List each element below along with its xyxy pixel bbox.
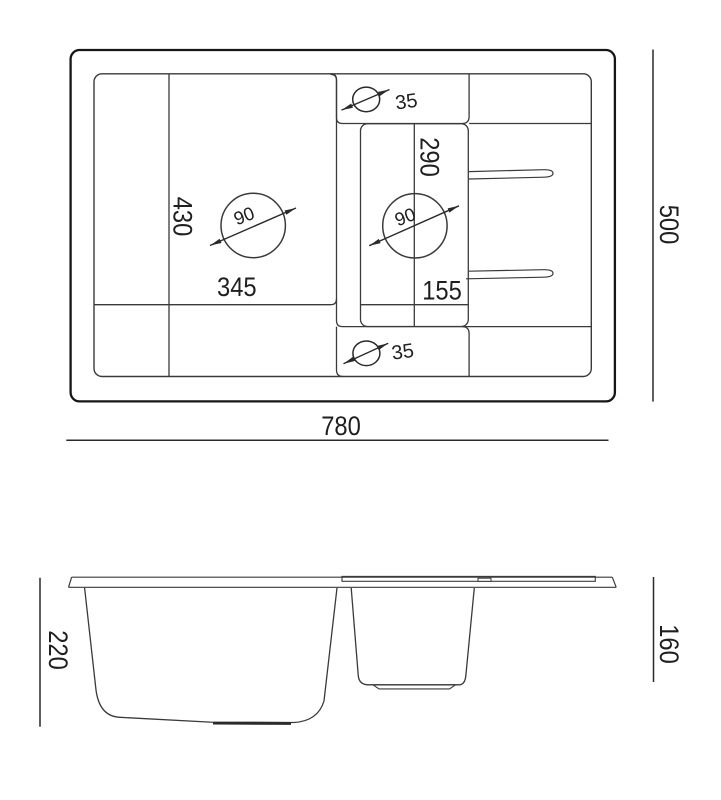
- svg-text:430: 430: [167, 197, 197, 237]
- svg-text:345: 345: [217, 273, 257, 303]
- svg-text:35: 35: [390, 340, 415, 365]
- svg-text:500: 500: [653, 205, 683, 245]
- svg-text:155: 155: [422, 276, 462, 306]
- svg-text:160: 160: [653, 624, 683, 664]
- svg-text:780: 780: [321, 411, 361, 441]
- svg-text:35: 35: [394, 90, 419, 115]
- svg-text:290: 290: [414, 137, 444, 177]
- svg-text:220: 220: [42, 630, 72, 670]
